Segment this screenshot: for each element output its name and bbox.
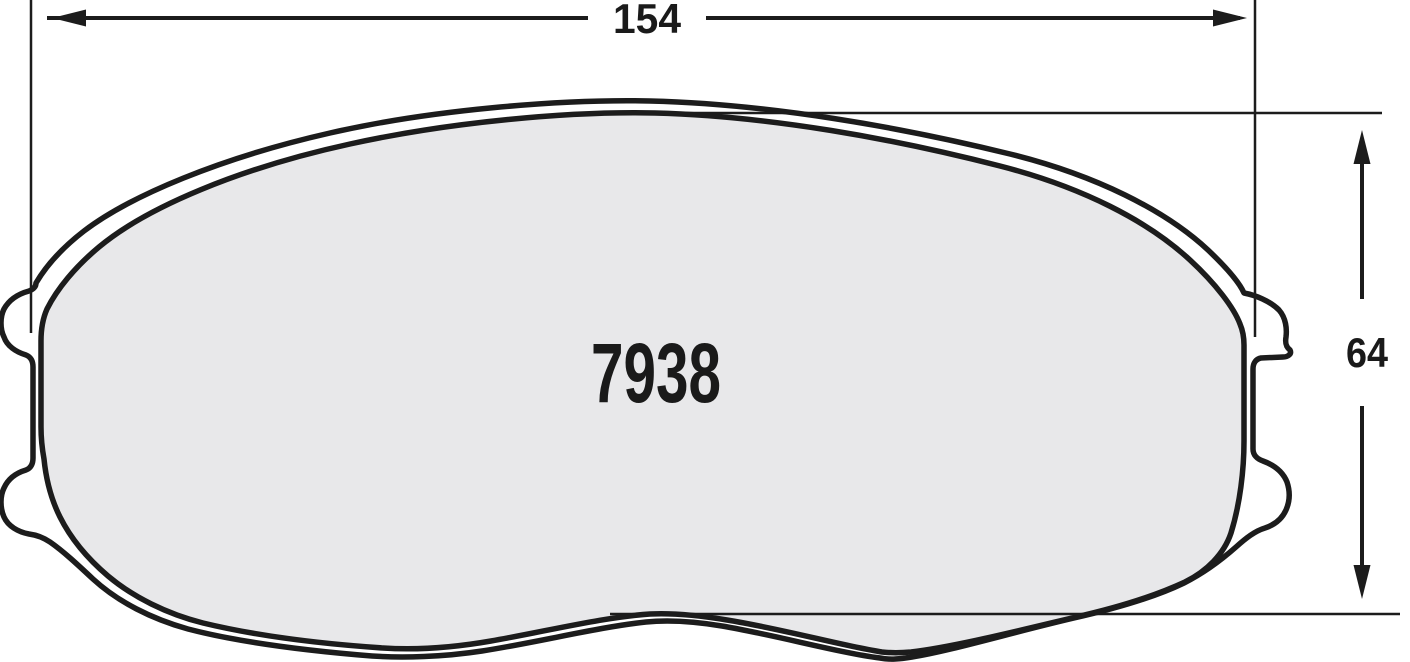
drawing-page: 154 64 7938 [0, 0, 1410, 662]
width-dimension-label: 154 [613, 0, 682, 42]
brake-pad-drawing: 154 64 7938 [0, 0, 1410, 662]
width-dim-arrowhead-left [52, 10, 86, 27]
height-dimension-label: 64 [1346, 329, 1389, 376]
part-number-label: 7938 [591, 326, 721, 420]
height-dim-arrowhead-down [1354, 565, 1371, 599]
height-dim-arrowhead-up [1354, 130, 1371, 164]
width-dim-arrowhead-right [1213, 10, 1247, 27]
